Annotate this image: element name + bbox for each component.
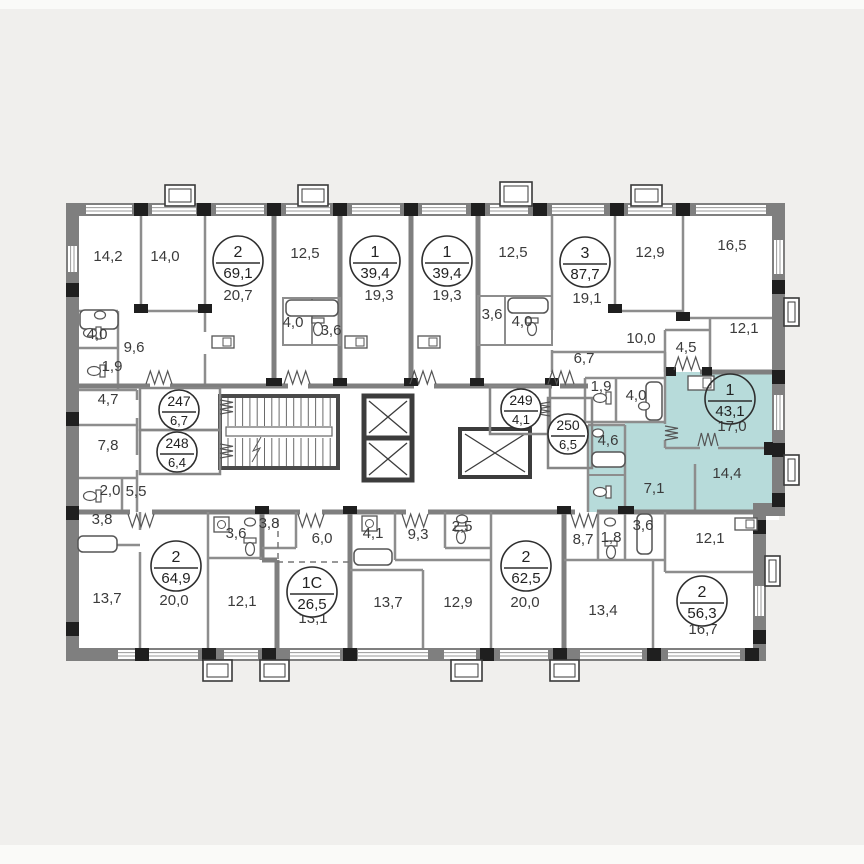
apartment-number: 2 [698, 584, 707, 601]
room-area-label: 6,0 [312, 530, 333, 547]
room-area-label: 7,8 [98, 437, 119, 454]
room-area-label: 1,9 [591, 378, 612, 395]
apartment-badge: 139,4 [350, 236, 400, 286]
room-area-label: 20,7 [223, 287, 252, 304]
room-area-label: 6,7 [574, 350, 595, 367]
apartment-total-area: 6,7 [170, 413, 188, 428]
apartment-badge: 2506,5 [548, 414, 588, 454]
apartment-number: 247 [167, 393, 191, 409]
room-area-label: 12,5 [290, 245, 319, 262]
floor-plan-page: 14,214,020,74,09,61,94,712,54,03,619,319… [0, 0, 864, 864]
apartment-number: 2 [522, 549, 531, 566]
room-area-label: 3,6 [226, 525, 247, 542]
apartment-total-area: 43,1 [715, 403, 744, 420]
apartment-badge: 139,4 [422, 236, 472, 286]
room-area-label: 2,5 [452, 518, 473, 535]
floor-plan: 14,214,020,74,09,61,94,712,54,03,619,319… [0, 0, 864, 864]
room-area-label: 4,0 [626, 387, 647, 404]
apartment-badge: 264,9 [151, 541, 201, 591]
room-area-label: 3,8 [259, 515, 280, 532]
room-area-label: 3,6 [321, 322, 342, 339]
room-area-label: 19,3 [432, 287, 461, 304]
room-area-label: 4,0 [87, 326, 108, 343]
room-area-label: 12,9 [443, 594, 472, 611]
apartment-total-area: 56,3 [687, 605, 716, 622]
room-area-label: 20,0 [159, 592, 188, 609]
toilet-icon [594, 486, 612, 498]
apartment-number: 1C [302, 575, 322, 592]
room-area-label: 14,2 [93, 248, 122, 265]
apartment-number: 1 [726, 382, 735, 399]
apartment-number: 2 [172, 549, 181, 566]
room-area-label: 1,9 [102, 358, 123, 375]
apartment-badge: 2486,4 [157, 432, 197, 472]
room-area-label: 1,8 [601, 529, 622, 546]
room-area-label: 10,0 [626, 330, 655, 347]
apartment-badge: 2494,1 [501, 389, 541, 429]
room-area-label: 3,8 [92, 511, 113, 528]
room-area-label: 4,1 [363, 525, 384, 542]
apartment-number: 250 [556, 417, 580, 433]
apartment-badge: 256,3 [677, 576, 727, 626]
apartment-total-area: 69,1 [223, 265, 252, 282]
room-area-label: 4,6 [598, 432, 619, 449]
apartment-total-area: 6,4 [168, 455, 186, 470]
room-area-label: 16,5 [717, 237, 746, 254]
apartment-number: 248 [165, 435, 189, 451]
room-area-label: 4,0 [512, 313, 533, 330]
apartment-total-area: 4,1 [512, 412, 530, 427]
room-area-label: 9,3 [408, 526, 429, 543]
room-area-label: 13,7 [92, 590, 121, 607]
room-area-label: 12,1 [227, 593, 256, 610]
toilet-icon [84, 490, 102, 502]
apartment-number: 1 [443, 244, 452, 261]
room-area-label: 14,0 [150, 248, 179, 265]
room-area-label: 4,0 [283, 314, 304, 331]
apartment-number: 2 [234, 244, 243, 261]
room-area-label: 20,0 [510, 594, 539, 611]
apartment-number: 3 [581, 245, 590, 262]
room-area-label: 8,7 [573, 531, 594, 548]
room-area-label: 7,1 [644, 480, 665, 497]
apartment-badge: 262,5 [501, 541, 551, 591]
room-area-label: 9,6 [124, 339, 145, 356]
apartment-total-area: 64,9 [161, 570, 190, 587]
room-area-label: 3,6 [633, 517, 654, 534]
room-area-label: 12,1 [695, 530, 724, 547]
room-area-label: 2,0 [100, 482, 121, 499]
room-area-label: 4,7 [98, 391, 119, 408]
apartment-total-area: 39,4 [432, 265, 461, 282]
room-area-label: 12,1 [729, 320, 758, 337]
room-area-label: 3,6 [482, 306, 503, 323]
apartment-badge: 2476,7 [159, 390, 199, 430]
room-area-label: 5,5 [126, 483, 147, 500]
room-area-label: 19,1 [572, 290, 601, 307]
room-area-label: 12,5 [498, 244, 527, 261]
room-area-label: 12,9 [635, 244, 664, 261]
apartment-number: 249 [509, 392, 533, 408]
room-area-label: 14,4 [712, 465, 741, 482]
apartment-total-area: 87,7 [570, 266, 599, 283]
room-area-label: 13,4 [588, 602, 617, 619]
apartment-badge: 387,7 [560, 237, 610, 287]
apartment-total-area: 6,5 [559, 437, 577, 452]
apartment-badge: 1C26,5 [287, 567, 337, 617]
apartment-number: 1 [371, 244, 380, 261]
apartment-total-area: 62,5 [511, 570, 540, 587]
apartment-badge: 269,1 [213, 236, 263, 286]
room-area-label: 4,5 [676, 339, 697, 356]
room-area-label: 19,3 [364, 287, 393, 304]
room-area-label: 13,7 [373, 594, 402, 611]
apartment-total-area: 39,4 [360, 265, 389, 282]
apartment-total-area: 26,5 [297, 596, 326, 613]
